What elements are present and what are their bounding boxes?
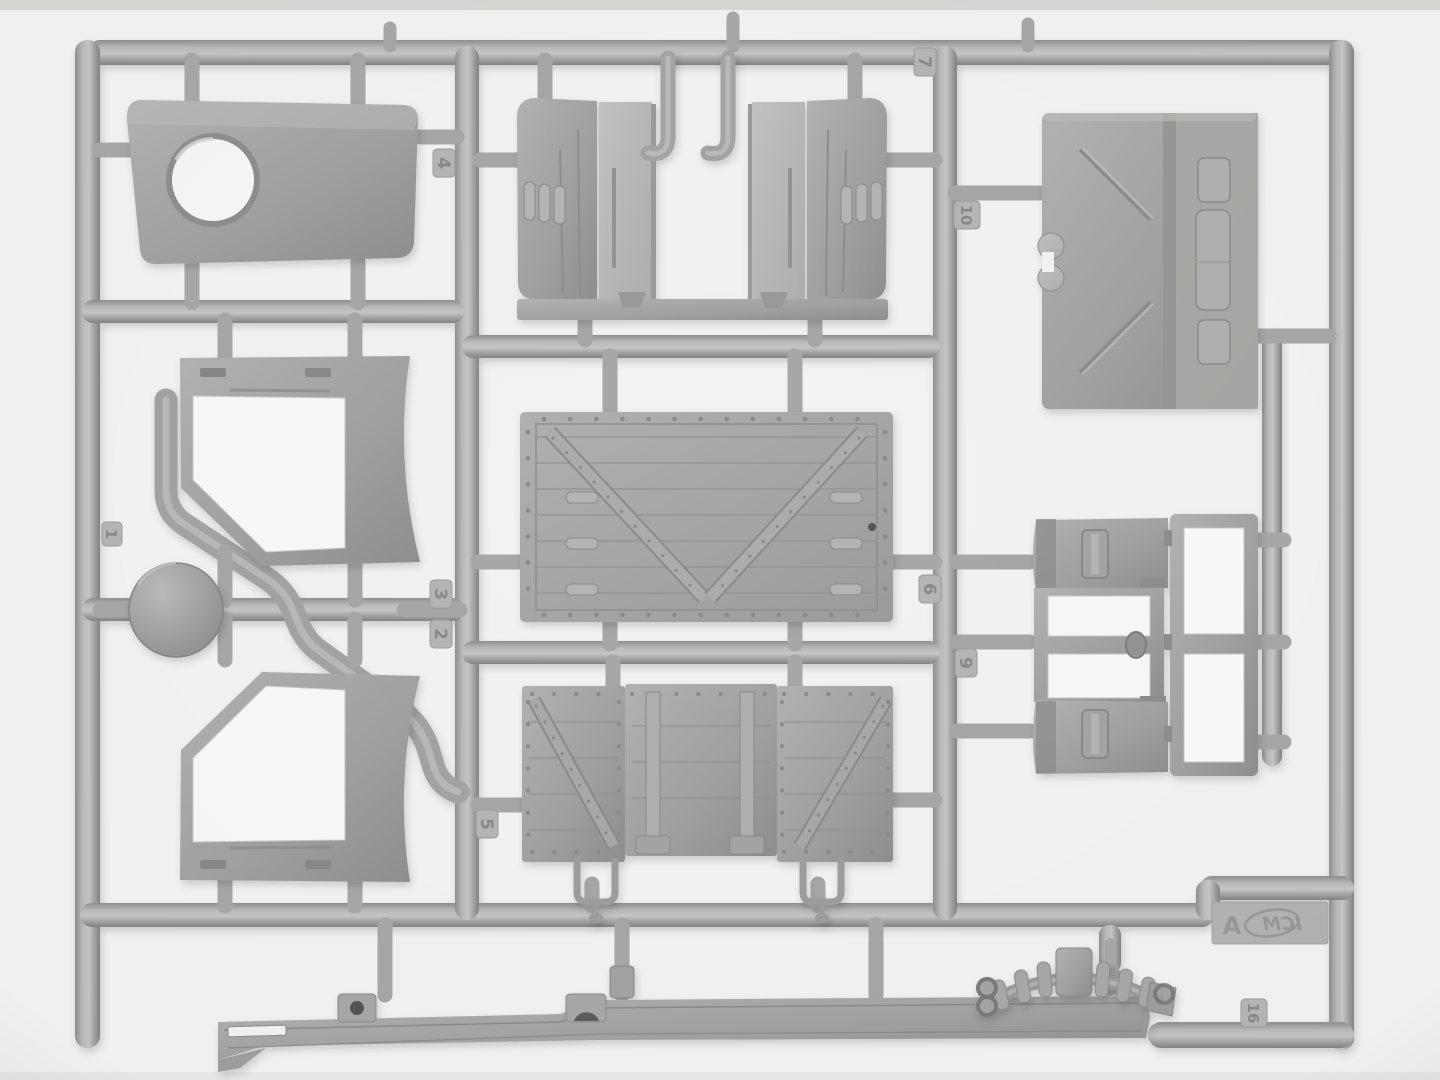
windshield-pane-opening [1184,528,1244,634]
part-tag-label: 9 [955,657,975,669]
windshield-assembly-part [1033,514,1258,776]
part-tag-16: 16 [1241,999,1267,1027]
cowl-frame-opening [1048,654,1150,698]
part-tag-10: 10 [954,201,980,229]
part-tag-9: 9 [955,649,977,677]
part-tag-4: 4 [433,149,455,177]
photo-bottom-edge [0,1072,1440,1080]
part-tag-7: 7 [914,48,936,76]
part-tag-label: 5 [476,818,496,830]
part-tag-1: 1 [102,522,122,546]
brand-logo-text: ICM [1262,913,1302,935]
part-tag-5: 5 [476,810,498,838]
part-tag-6: 6 [919,575,941,603]
part-tag-3: 3 [430,580,452,608]
cargo-floor-part [520,412,893,622]
round-hatch-disc-part [129,563,223,657]
photo-top-edge [0,0,1440,10]
part-tag-label: 2 [430,628,450,640]
sprue-photo: 1 2 3 4 5 6 7 9 10 16 ICM A [0,0,1440,1080]
part-tag-2: 2 [430,620,452,648]
part-tag-label: 6 [919,583,939,595]
cab-rear-panel-part [1038,113,1258,409]
part-tag-label: 1 [102,529,120,539]
part-tag-label: 10 [957,205,975,226]
brand-logo-plate: ICM A [1212,902,1328,944]
sprue-letter: A [1222,912,1241,940]
cowl-frame-opening [1048,596,1150,636]
part-tag-label: 16 [1244,1003,1262,1024]
cab-roof-panel-part [127,100,418,264]
part-tag-label: 7 [914,56,934,68]
sprue-photo-canvas: 1 2 3 4 5 6 7 9 10 16 ICM A [0,0,1440,1080]
part-tag-label: 3 [430,588,450,600]
part-tag-label: 4 [433,157,453,169]
windshield-pane-opening [1184,654,1244,762]
